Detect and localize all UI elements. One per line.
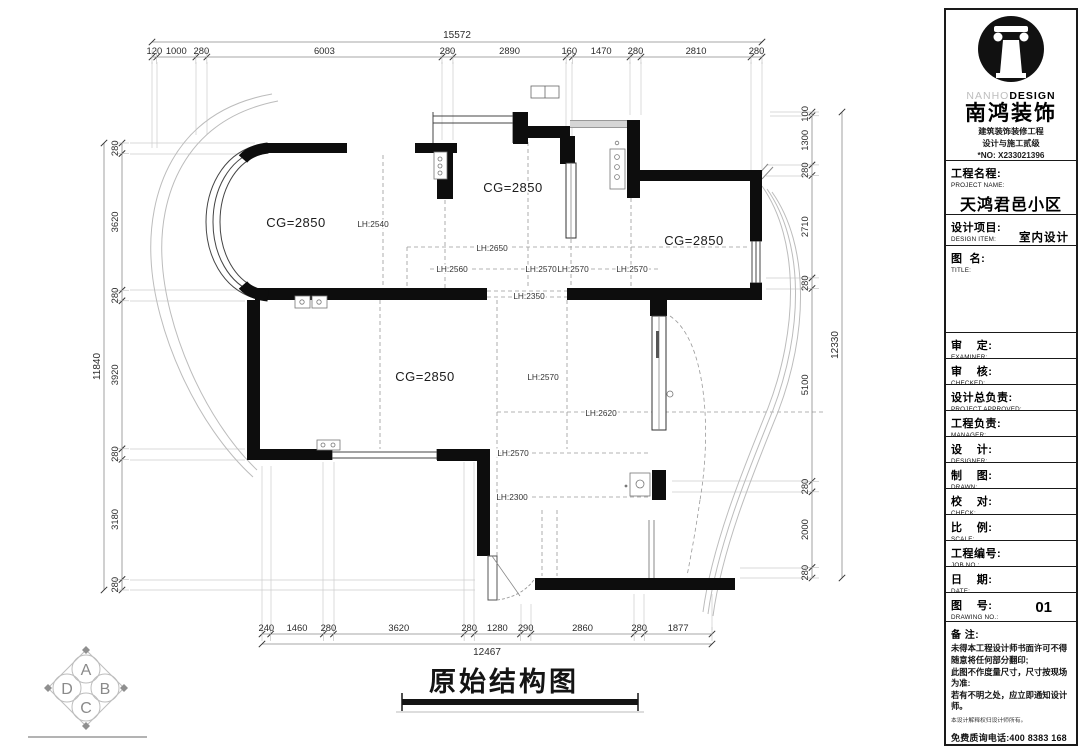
note-line: 师。 bbox=[951, 701, 1071, 713]
dim-label: 280 bbox=[799, 479, 810, 495]
dim-label: 280 bbox=[799, 565, 810, 581]
row-label-cn: 工程负责: bbox=[951, 418, 1001, 430]
dim-label: 5100 bbox=[799, 374, 810, 395]
room-height-label: CG=2850 bbox=[664, 233, 724, 248]
dim-label: 3920 bbox=[109, 364, 120, 385]
dim-label: 280 bbox=[631, 622, 647, 633]
dim-label: 120 bbox=[147, 45, 163, 56]
dim-total: 12330 bbox=[830, 331, 841, 359]
row-label-cn: 比 例: bbox=[951, 522, 992, 534]
drawing-sheet: 1201000280600328028901601470280281028015… bbox=[0, 0, 1080, 756]
dim-label: 1280 bbox=[487, 622, 508, 633]
titleblock-row: 日 期:DATE: bbox=[946, 566, 1076, 592]
titleblock-row: 工程负责:MANAGER: bbox=[946, 410, 1076, 436]
titleblock-row: 审 核:CHECKED: bbox=[946, 358, 1076, 384]
hotline: 免费质询电话:400 8383 168 bbox=[951, 731, 1071, 744]
project-name-section: 工程名程: PROJECT NAME: 天鸿君邑小区 bbox=[946, 160, 1076, 214]
drawing-title: 原始结构图 bbox=[429, 666, 579, 697]
note-line: 随意将任何部分翻印; bbox=[951, 655, 1071, 667]
drawing-no-value: 01 bbox=[1035, 599, 1052, 616]
title-field-label-cn: 图 名: bbox=[951, 253, 985, 265]
dim-label: 3620 bbox=[388, 622, 409, 633]
dim-label: 280 bbox=[628, 45, 644, 56]
titleblock-row: 制 图:DRAWN: bbox=[946, 462, 1076, 488]
note-line: 此图不作度量尺寸，尺寸按现场 bbox=[951, 667, 1071, 679]
lintel-height-label: LH:2570 bbox=[527, 372, 559, 382]
dim-label: 2000 bbox=[799, 519, 810, 540]
floor-plan-canvas: 1201000280600328028901601470280281028015… bbox=[0, 0, 944, 756]
dimension-chains: 1201000280600328028901601470280281028015… bbox=[92, 30, 845, 658]
dim-label: 290 bbox=[518, 622, 534, 633]
dim-label: 280 bbox=[321, 622, 337, 633]
brand-en-light: NANHO bbox=[966, 90, 1009, 102]
corner-stamp: A B C D bbox=[28, 646, 147, 737]
design-item-value: 室内设计 bbox=[1019, 229, 1069, 245]
lintel-height-label: LH:2570 bbox=[497, 448, 529, 458]
lintel-height-label: LH:2540 bbox=[357, 219, 389, 229]
company-logo-section: NANHODESIGN 南鸿装饰 建筑装饰装修工程 设计与施工贰级 *NO: X… bbox=[946, 10, 1076, 160]
lintel-height-label: LH:2570 bbox=[525, 264, 557, 274]
dim-label: 2890 bbox=[499, 45, 520, 56]
brand-english: NANHODESIGN bbox=[946, 91, 1076, 102]
stamp-letter-b: B bbox=[100, 681, 111, 698]
row-label-cn: 制 图: bbox=[951, 470, 992, 482]
row-label-cn: 校 对: bbox=[951, 496, 992, 508]
lintel-height-label: LH:2570 bbox=[616, 264, 648, 274]
dim-label: 2860 bbox=[572, 622, 593, 633]
titleblock-row: 校 对:CHECK: bbox=[946, 488, 1076, 514]
cert-line-1: 建筑装饰装修工程 bbox=[946, 126, 1076, 138]
notes-label: 备 注: bbox=[951, 630, 979, 641]
dim-label: 280 bbox=[109, 446, 120, 462]
stamp-letter-d: D bbox=[61, 681, 73, 698]
dim-total: 11840 bbox=[92, 353, 103, 381]
room-height-label: CG=2850 bbox=[395, 369, 455, 384]
row-label-cn: 审 核: bbox=[951, 366, 992, 378]
doors bbox=[488, 163, 673, 600]
design-item-label-cn: 设计项目: bbox=[951, 222, 1001, 234]
dim-label: 3620 bbox=[109, 211, 120, 232]
dim-label: 280 bbox=[109, 577, 120, 593]
room-height-label: CG=2850 bbox=[483, 180, 543, 195]
note-line: 若有不明之处，应立即通知设计 bbox=[951, 690, 1071, 702]
dim-label: 280 bbox=[109, 288, 120, 304]
brand-en-bold: DESIGN bbox=[1009, 90, 1055, 102]
lintel-height-label: LH:2570 bbox=[557, 264, 589, 274]
titleblock-row: 设 计:DESIGNER: bbox=[946, 436, 1076, 462]
dim-label: 1470 bbox=[591, 45, 612, 56]
lintel-height-label: LH:2300 bbox=[496, 492, 528, 502]
lintel-height-label: LH:2350 bbox=[513, 291, 545, 301]
dim-label: 1000 bbox=[166, 45, 187, 56]
drawing-title-group: 原始结构图 bbox=[396, 666, 644, 712]
lintel-height-label: LH:2560 bbox=[436, 264, 468, 274]
dim-label: 280 bbox=[799, 162, 810, 178]
dim-label: 1460 bbox=[287, 622, 308, 633]
row-label-cn: 工程编号: bbox=[951, 548, 1001, 560]
row-label-cn: 审 定: bbox=[951, 340, 992, 352]
notes-section: 备 注: 未得本工程设计师书面许可不得随意将任何部分翻印;此图不作度量尺寸，尺寸… bbox=[946, 621, 1076, 744]
title-block: NANHODESIGN 南鸿装饰 建筑装饰装修工程 设计与施工贰级 *NO: X… bbox=[944, 8, 1078, 746]
title-field-label-en: TITLE: bbox=[951, 267, 1071, 274]
note-line: 为准: bbox=[951, 678, 1071, 690]
project-label-en: PROJECT NAME: bbox=[951, 182, 1071, 189]
stamp-letter-c: C bbox=[80, 700, 92, 717]
drawing-no-section: 图 号: DRAWING NO.: 01 bbox=[946, 592, 1076, 621]
room-height-label: CG=2850 bbox=[266, 215, 326, 230]
dim-label: 1300 bbox=[799, 130, 810, 151]
row-label-cn: 设计总负责: bbox=[951, 392, 1013, 404]
titleblock-row: 设计总负责:PROJECT APPROVED: bbox=[946, 384, 1076, 410]
dim-label: 3180 bbox=[109, 509, 120, 530]
dim-label: 100 bbox=[799, 106, 810, 122]
dim-label: 160 bbox=[561, 45, 577, 56]
row-label-cn: 日 期: bbox=[951, 574, 992, 586]
dim-label: 280 bbox=[194, 45, 210, 56]
dim-label: 280 bbox=[440, 45, 456, 56]
dim-total: 12467 bbox=[473, 647, 501, 658]
row-label-cn: 设 计: bbox=[951, 444, 992, 456]
project-name-value: 天鸿君邑小区 bbox=[951, 191, 1071, 215]
sheet-title-field: 图 名: TITLE: bbox=[946, 245, 1076, 333]
design-item-section: 设计项目: DESIGN ITEM: 室内设计 bbox=[946, 214, 1076, 245]
dim-label: 280 bbox=[799, 275, 810, 291]
extension-lines bbox=[130, 62, 806, 630]
titleblock-row: 审 定:EXAMINER: bbox=[946, 332, 1076, 358]
lintel-height-label: LH:2650 bbox=[476, 243, 508, 253]
brand-chinese: 南鸿装饰 bbox=[946, 102, 1076, 126]
dim-label: 6003 bbox=[314, 45, 335, 56]
stamp-letter-a: A bbox=[81, 662, 92, 679]
project-label-cn: 工程名程: bbox=[951, 168, 1001, 180]
dim-label: 1877 bbox=[668, 622, 689, 633]
drawing-no-label-cn: 图 号: bbox=[951, 600, 992, 612]
dim-label: 280 bbox=[749, 45, 765, 56]
lintel-height-label: LH:2620 bbox=[585, 408, 617, 418]
dim-label: 2810 bbox=[686, 45, 707, 56]
dim-label: 280 bbox=[109, 140, 120, 156]
dim-total: 15572 bbox=[443, 30, 471, 41]
dim-label: 240 bbox=[259, 622, 275, 633]
notes-body: 未得本工程设计师书面许可不得随意将任何部分翻印;此图不作度量尺寸，尺寸按现场为准… bbox=[951, 643, 1071, 713]
titleblock-row: 比 例:SCALE: bbox=[946, 514, 1076, 540]
dim-label: 280 bbox=[461, 622, 477, 633]
dim-label: 2710 bbox=[799, 216, 810, 237]
drawing-no-label-en: DRAWING NO.: bbox=[951, 614, 1071, 621]
notes-fine-print: 本设计解释权归设计师所有。 bbox=[951, 715, 1071, 724]
titleblock-row: 工程编号:JOB NO.: bbox=[946, 540, 1076, 566]
title-underline-bar bbox=[402, 699, 638, 705]
note-line: 未得本工程设计师书面许可不得 bbox=[951, 643, 1071, 655]
column-logo-icon bbox=[975, 13, 1047, 85]
cert-line-2: 设计与施工贰级 bbox=[946, 138, 1076, 150]
